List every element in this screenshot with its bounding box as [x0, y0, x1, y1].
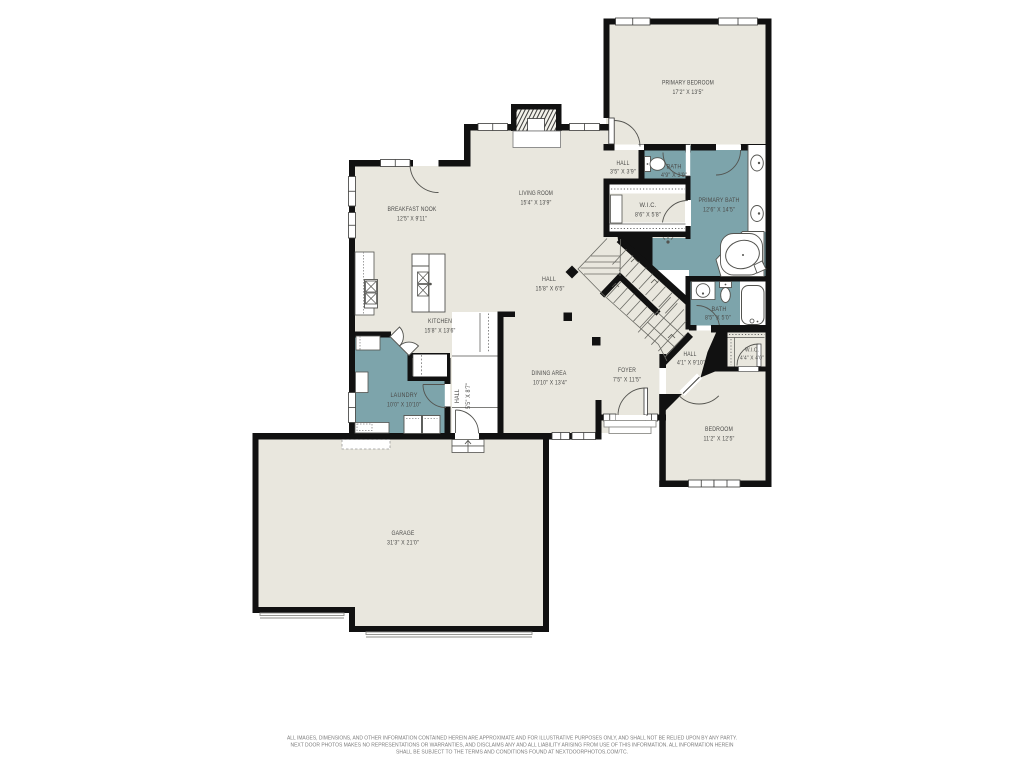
svg-text:5'5" X 8'7": 5'5" X 8'7" — [465, 383, 472, 409]
svg-text:W.I.C.: W.I.C. — [745, 348, 759, 354]
svg-text:LAUNDRY: LAUNDRY — [391, 392, 418, 399]
svg-text:BATH: BATH — [667, 164, 682, 171]
svg-text:8'6" X 5'8": 8'6" X 5'8" — [635, 212, 661, 219]
svg-text:10'0" X 10'10": 10'0" X 10'10" — [387, 402, 421, 409]
svg-text:HALL: HALL — [454, 389, 461, 403]
svg-text:SHALL BE SUBJECT TO THE TERMS: SHALL BE SUBJECT TO THE TERMS AND CONDIT… — [396, 750, 628, 756]
svg-text:15'4" X 13'9": 15'4" X 13'9" — [521, 200, 552, 207]
svg-text:10'10" X 13'4": 10'10" X 13'4" — [533, 380, 567, 387]
svg-text:W.I.C.: W.I.C. — [640, 202, 657, 209]
svg-text:4'4" X 4'0": 4'4" X 4'0" — [740, 356, 764, 362]
svg-text:15'8" X 13'6": 15'8" X 13'6" — [425, 328, 456, 335]
svg-text:17'2" X 13'5": 17'2" X 13'5" — [673, 89, 704, 96]
svg-text:8'5" X 5'0": 8'5" X 5'0" — [705, 315, 731, 322]
svg-text:15'8" X 6'5": 15'8" X 6'5" — [536, 286, 565, 293]
svg-text:12'6" X 14'5": 12'6" X 14'5" — [703, 207, 735, 214]
svg-text:DINING AREA: DINING AREA — [532, 370, 567, 377]
svg-text:11'2" X 12'5": 11'2" X 12'5" — [704, 436, 735, 443]
svg-text:BREAKFAST NOOK: BREAKFAST NOOK — [388, 206, 437, 213]
svg-text:HALL: HALL — [684, 351, 697, 358]
svg-text:HALL: HALL — [617, 160, 630, 167]
svg-text:12'5" X 9'11": 12'5" X 9'11" — [397, 216, 427, 223]
svg-text:PRIMARY BATH: PRIMARY BATH — [699, 197, 740, 204]
svg-text:BATH: BATH — [712, 306, 727, 313]
svg-text:PRIMARY BEDROOM: PRIMARY BEDROOM — [662, 80, 714, 87]
svg-text:ALL IMAGES, DIMENSIONS, AND OT: ALL IMAGES, DIMENSIONS, AND OTHER INFORM… — [287, 736, 737, 742]
svg-text:FOYER: FOYER — [618, 367, 636, 374]
svg-text:LIVING ROOM: LIVING ROOM — [519, 190, 553, 197]
svg-text:4'9" X 3'9": 4'9" X 3'9" — [661, 172, 687, 179]
svg-text:BEDROOM: BEDROOM — [705, 426, 733, 433]
svg-text:HALL: HALL — [542, 276, 556, 283]
svg-text:31'3" X 21'0": 31'3" X 21'0" — [387, 540, 419, 547]
svg-text:4'1" X 9'10": 4'1" X 9'10" — [677, 360, 705, 367]
svg-text:3'5" X 3'9": 3'5" X 3'9" — [610, 169, 636, 176]
svg-text:7'5" X 11'5": 7'5" X 11'5" — [613, 377, 641, 384]
svg-text:GARAGE: GARAGE — [392, 530, 415, 537]
svg-text:NEXT DOOR PHOTOS MAKES NO REPR: NEXT DOOR PHOTOS MAKES NO REPRESENTATION… — [291, 743, 734, 749]
svg-text:KITCHEN: KITCHEN — [428, 318, 452, 325]
